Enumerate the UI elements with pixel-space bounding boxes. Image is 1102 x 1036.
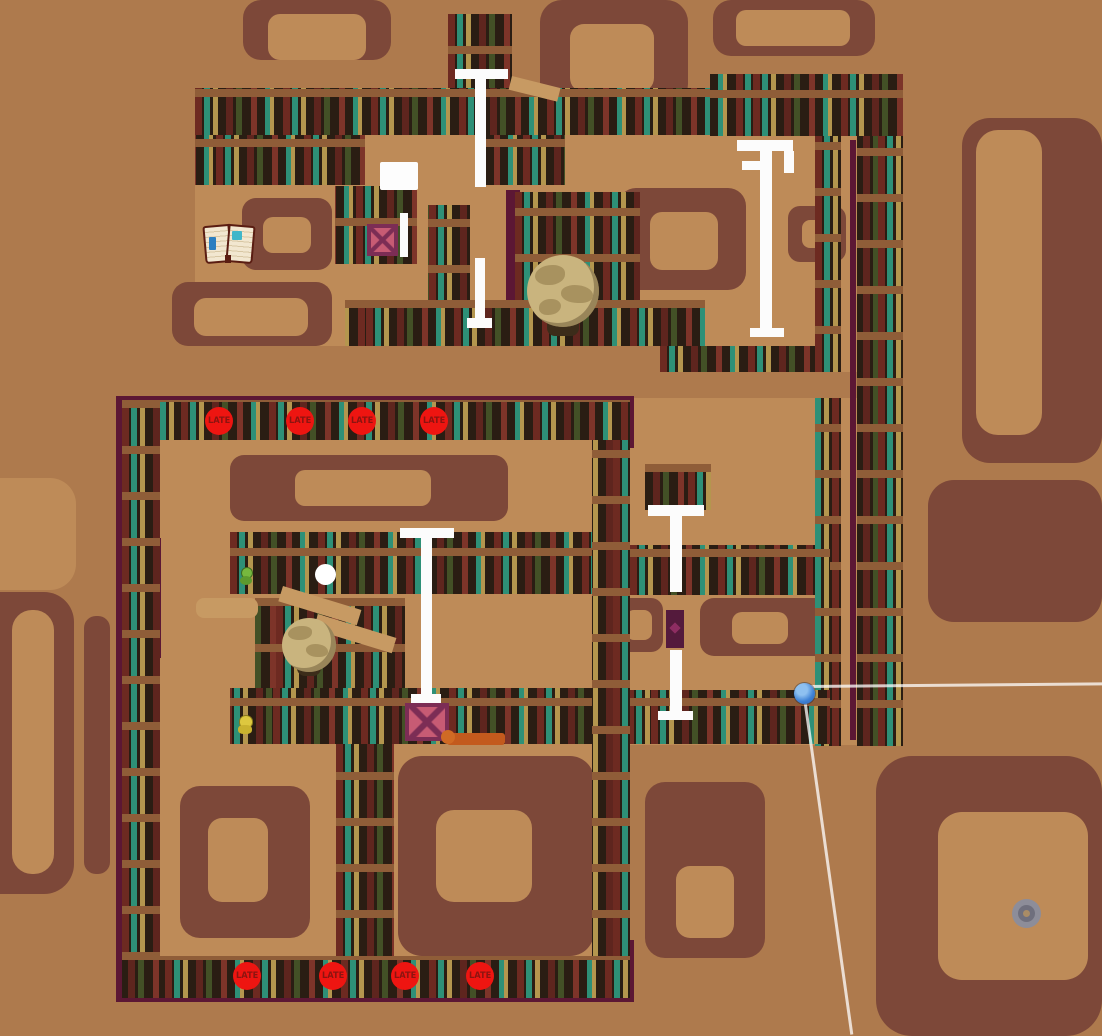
bookshelf bbox=[336, 744, 394, 956]
path-line bbox=[803, 698, 853, 1035]
bookshelf bbox=[345, 300, 705, 346]
late-marker-label: LATE bbox=[208, 416, 230, 426]
orange-sled[interactable] bbox=[447, 733, 505, 745]
bookshelf bbox=[592, 440, 630, 956]
book-spine bbox=[225, 255, 231, 263]
ladder[interactable] bbox=[784, 151, 794, 173]
ladder[interactable] bbox=[760, 151, 772, 331]
late-marker[interactable]: LATE bbox=[420, 407, 448, 435]
late-marker[interactable]: LATE bbox=[286, 407, 314, 435]
green-bookworm[interactable] bbox=[240, 568, 254, 585]
ladder[interactable] bbox=[750, 328, 784, 337]
ladder[interactable] bbox=[658, 711, 693, 720]
ladder[interactable] bbox=[467, 318, 492, 328]
ladder[interactable] bbox=[475, 79, 486, 187]
late-marker[interactable]: LATE bbox=[233, 962, 261, 990]
bookshelf bbox=[195, 135, 365, 185]
late-marker-label: LATE bbox=[289, 416, 311, 426]
bookshelf bbox=[630, 545, 830, 595]
rug-inner bbox=[650, 212, 718, 270]
library-game-map: LATE LATE LATE LATE LATE LATE LATE LATE bbox=[0, 0, 1102, 1036]
late-marker[interactable]: LATE bbox=[391, 962, 419, 990]
late-marker-label: LATE bbox=[469, 971, 491, 981]
globe[interactable] bbox=[527, 255, 599, 327]
white-ball[interactable] bbox=[315, 564, 336, 585]
gray-ring[interactable] bbox=[1012, 899, 1041, 928]
late-marker-label: LATE bbox=[322, 971, 344, 981]
ladder[interactable] bbox=[737, 140, 793, 151]
rug-inner bbox=[268, 14, 366, 60]
pillar bbox=[0, 478, 76, 590]
late-marker[interactable]: LATE bbox=[348, 407, 376, 435]
bookshelf bbox=[857, 136, 903, 746]
rug-inner bbox=[436, 810, 532, 902]
globe[interactable] bbox=[282, 618, 336, 672]
rug-inner bbox=[938, 812, 1088, 980]
bookmark-blue bbox=[209, 237, 216, 250]
late-marker-label: LATE bbox=[351, 416, 373, 426]
bookshelf bbox=[710, 74, 903, 136]
bookshelf bbox=[660, 346, 815, 372]
x-crate[interactable] bbox=[367, 224, 398, 256]
late-marker-label: LATE bbox=[423, 416, 445, 426]
pillar bbox=[84, 616, 110, 874]
ladder[interactable] bbox=[421, 538, 432, 696]
shelf-board bbox=[196, 598, 258, 618]
wall-trim bbox=[850, 140, 856, 740]
pillar-inner bbox=[12, 610, 54, 874]
orange-sled-knob bbox=[441, 730, 455, 744]
bookshelf bbox=[122, 400, 160, 998]
rug bbox=[928, 480, 1102, 622]
rug-inner bbox=[736, 10, 850, 46]
bookshelf bbox=[480, 135, 565, 185]
rug-inner bbox=[732, 612, 788, 644]
bookshelf bbox=[428, 205, 470, 311]
rug-inner bbox=[263, 217, 311, 253]
late-marker-label: LATE bbox=[236, 971, 258, 981]
rug-inner bbox=[570, 24, 654, 92]
rug-inner bbox=[976, 130, 1042, 435]
purple-book[interactable] bbox=[666, 610, 684, 648]
bookmark-teal bbox=[232, 231, 242, 240]
rug-inner bbox=[208, 818, 268, 902]
ladder[interactable] bbox=[648, 505, 704, 516]
bookshelf bbox=[122, 956, 630, 998]
ladder[interactable] bbox=[670, 650, 682, 712]
late-marker[interactable]: LATE bbox=[319, 962, 347, 990]
bookshelf bbox=[645, 464, 711, 510]
ladder[interactable] bbox=[400, 213, 408, 257]
bookshelf bbox=[815, 136, 841, 372]
rug-inner bbox=[676, 866, 734, 938]
open-book-icon[interactable] bbox=[204, 221, 252, 263]
ladder[interactable] bbox=[455, 69, 508, 79]
late-marker-label: LATE bbox=[394, 971, 416, 981]
paper-sheet[interactable] bbox=[380, 162, 418, 190]
ladder[interactable] bbox=[670, 516, 682, 592]
shelf-label bbox=[413, 695, 438, 703]
rug-inner bbox=[194, 298, 308, 336]
late-marker[interactable]: LATE bbox=[205, 407, 233, 435]
ladder[interactable] bbox=[400, 528, 454, 538]
player-ball-blue[interactable] bbox=[794, 683, 815, 704]
bookshelf bbox=[195, 88, 710, 135]
late-marker[interactable]: LATE bbox=[466, 962, 494, 990]
rug-inner bbox=[295, 470, 431, 506]
ladder[interactable] bbox=[475, 258, 485, 320]
yellow-bookworm[interactable] bbox=[238, 716, 254, 734]
